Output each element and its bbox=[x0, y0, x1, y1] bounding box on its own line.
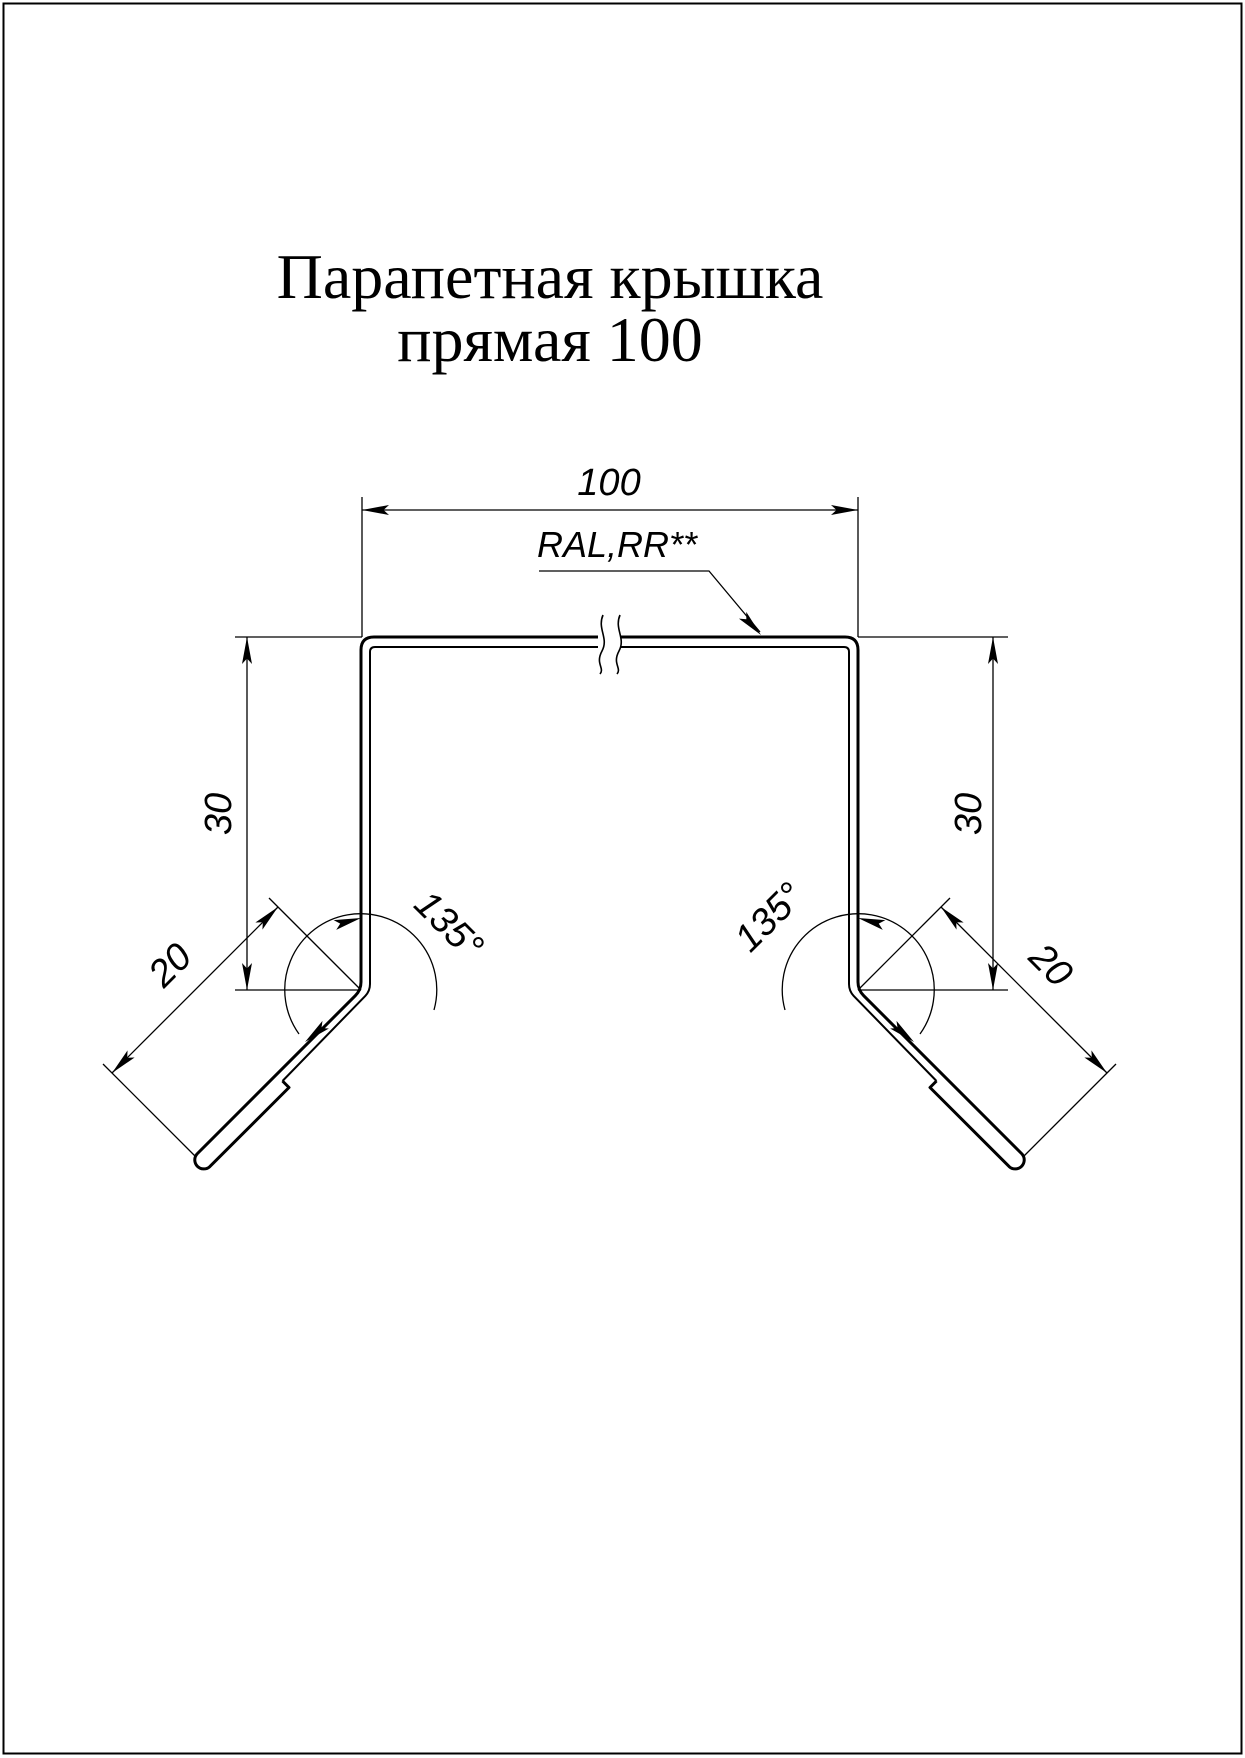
profile-inner-right bbox=[621, 647, 937, 1081]
title-line-1: Парапетная крышка bbox=[277, 241, 824, 312]
arrowheads bbox=[108, 505, 1110, 1077]
parapet-cap-drawing: Парапетная крышка прямая 100 bbox=[0, 0, 1245, 1758]
profile-outer-right bbox=[621, 637, 1024, 1169]
profile-left-half bbox=[195, 637, 598, 1169]
coating-label: RAL,RR** bbox=[537, 524, 698, 565]
dim-angle-left-label: 135° bbox=[406, 883, 491, 968]
dim-height-left-label: 30 bbox=[198, 793, 240, 835]
dimension-labels: 100 RAL,RR** 30 30 20 20 135° 135° bbox=[140, 462, 1080, 996]
dim-flange-right-label: 20 bbox=[1020, 935, 1080, 995]
profile-inner-left bbox=[283, 647, 599, 1081]
dim-flange-left-label: 20 bbox=[140, 936, 200, 996]
leader-line bbox=[539, 571, 760, 632]
dim-top-width-label: 100 bbox=[577, 462, 640, 504]
profile-outer-left bbox=[195, 637, 598, 1169]
dimension-lines bbox=[112, 510, 1107, 1073]
dim-angle-right-label: 135° bbox=[727, 875, 812, 960]
title-line-2: прямая 100 bbox=[397, 304, 703, 375]
break-symbol bbox=[599, 615, 621, 674]
profile-right-half bbox=[621, 637, 1024, 1169]
drawing-title: Парапетная крышка прямая 100 bbox=[277, 241, 824, 375]
dim-height-right-label: 30 bbox=[948, 793, 990, 835]
